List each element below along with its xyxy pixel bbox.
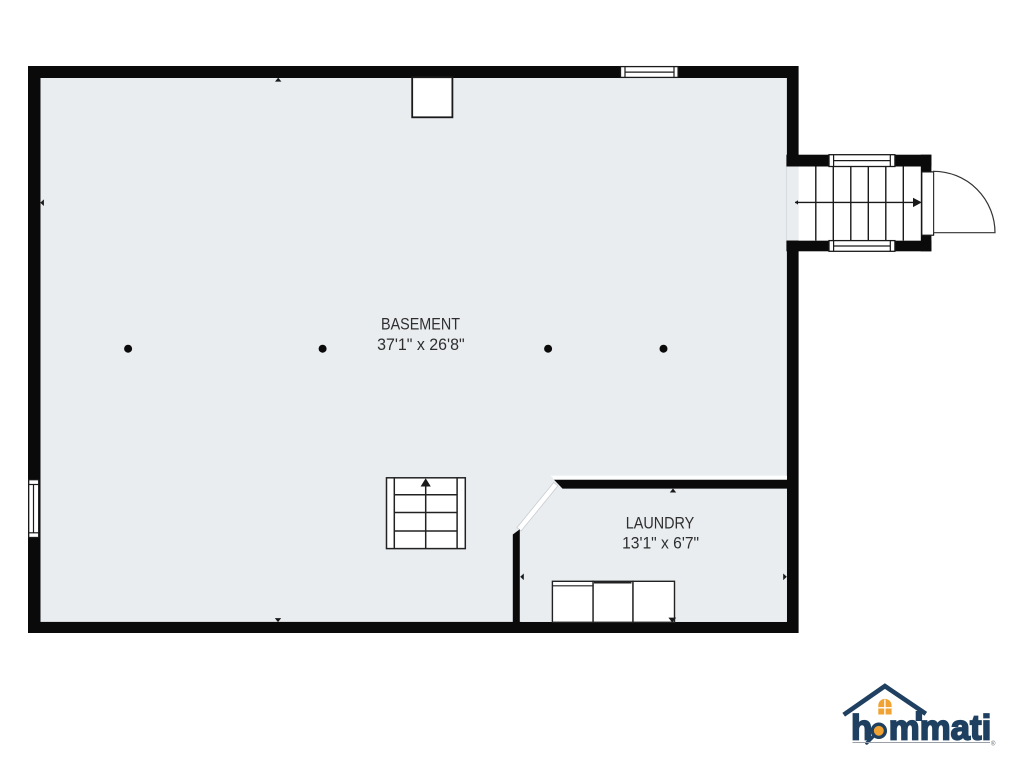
- svg-text:BASEMENT: BASEMENT: [381, 315, 460, 334]
- svg-text:mmati: mmati: [889, 709, 992, 748]
- svg-text:LAUNDRY: LAUNDRY: [626, 514, 695, 533]
- svg-text:37'1" x 26'8": 37'1" x 26'8": [377, 335, 465, 354]
- svg-text:13'1" x 6'7": 13'1" x 6'7": [622, 533, 699, 552]
- svg-text:®: ®: [991, 741, 996, 748]
